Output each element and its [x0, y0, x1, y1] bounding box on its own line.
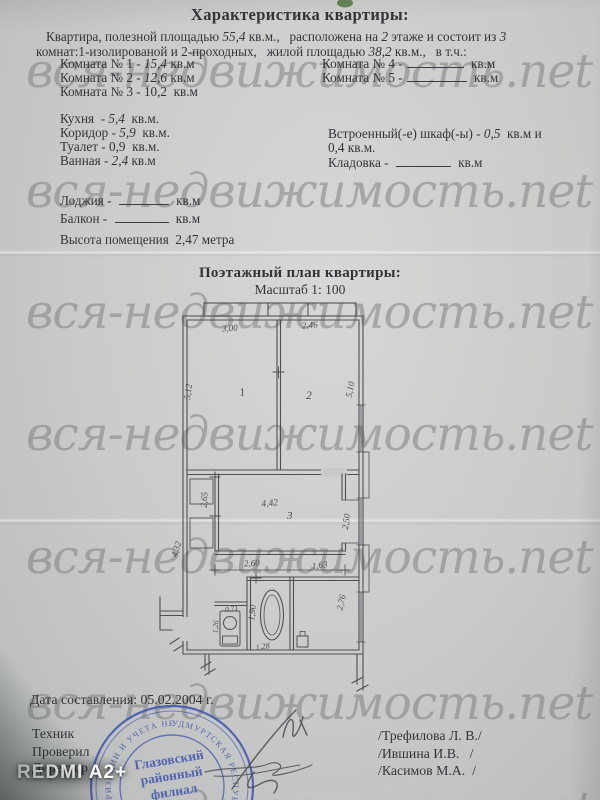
signatory-name: /Ившина И.В. / — [378, 747, 474, 762]
date-line: Дата составления: 05.02.2004 г. — [30, 693, 214, 708]
photographed-document: вся-недвижимость.netвся-недвижимость.net… — [0, 0, 600, 800]
dimension-label: 0,71 — [224, 603, 238, 614]
dimension-label: 4,42 — [261, 498, 279, 510]
room-number-label: 3 — [286, 510, 293, 522]
dimension-label: 2,65 — [198, 491, 209, 508]
photo-artifact-green-mark — [337, 0, 353, 8]
dimension-label: 1,63 — [311, 559, 328, 571]
dimension-label: 5,12 — [182, 383, 194, 400]
dimension-label: 2,60 — [244, 557, 261, 568]
plan-fixtures — [220, 590, 308, 647]
role-technician: Техник — [32, 727, 74, 742]
dimension-label: 2,50 — [340, 513, 352, 530]
dimension-label: 1,26 — [211, 620, 221, 634]
camera-watermark: REDMI A2+ — [17, 762, 127, 784]
dimension-label: 2,76 — [334, 593, 347, 611]
stamp-rim-text: УДМУРТСКАЯ РЕСПУБЛИКА • ТЕХНИЧЕСКОЙ ИНВЕ… — [0, 0, 240, 800]
dimension-label: 2,46 — [301, 319, 318, 330]
signatory-name: /Касимов М.А. / — [378, 764, 476, 779]
svg-text:УДМУРТСКАЯ РЕСПУБЛИКА • ТЕХНИЧ: УДМУРТСКАЯ РЕСПУБЛИКА • ТЕХНИЧЕСКОЙ ИНВЕ… — [0, 0, 240, 800]
signatory-name: /Трефилова Л. В./ — [378, 729, 482, 744]
floor-plan-svg: 3,00 2,46 5,12 5,10 2,65 4,32 4,42 2,50 … — [0, 0, 600, 800]
dimension-label: 3,00 — [221, 322, 239, 333]
toilet-icon — [220, 611, 240, 646]
dimension-label: 4,32 — [169, 540, 183, 558]
sink-icon — [297, 632, 308, 648]
round-stamp: УДМУРТСКАЯ РЕСПУБЛИКА • ТЕХНИЧЕСКОЙ ИНВЕ… — [0, 0, 253, 800]
dimension-label: 1,90 — [246, 604, 258, 621]
plan-labels: 3,00 2,46 5,12 5,10 2,65 4,32 4,42 2,50 … — [169, 319, 356, 652]
room-number-label: 1 — [239, 386, 246, 399]
dimension-label: 5,10 — [344, 380, 357, 398]
room-number-label: 2 — [306, 390, 312, 402]
